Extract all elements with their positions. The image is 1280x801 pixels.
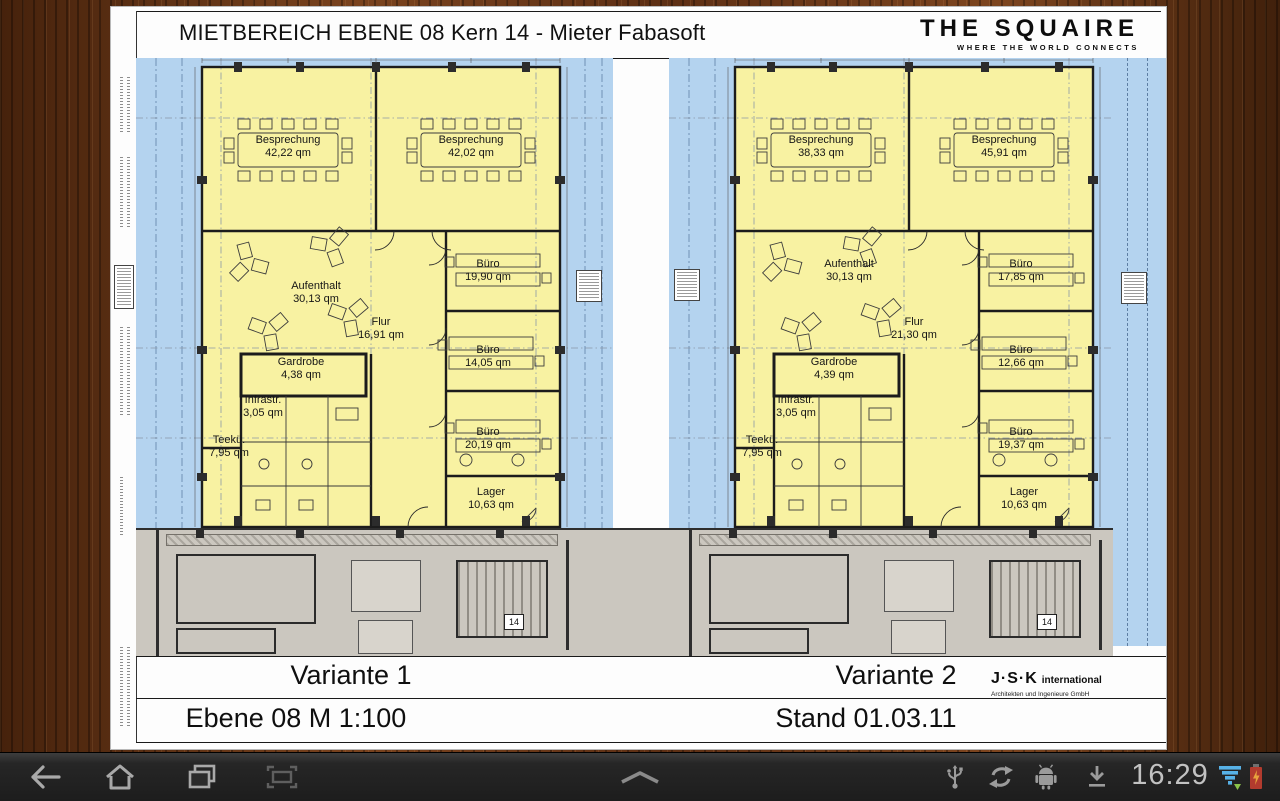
room-label-buero-2: Büro12,66 qm	[961, 344, 1081, 370]
room-label-besprechung-left: Besprechung38,33 qm	[761, 134, 881, 160]
home-button[interactable]	[103, 763, 137, 794]
screenshot-icon	[264, 763, 300, 791]
building-core-band: 14 14	[136, 528, 1113, 656]
sheet-frame-line	[136, 11, 1161, 12]
chevron-up-icon	[618, 769, 662, 785]
screenshot-button[interactable]	[264, 763, 300, 794]
jsk-wordmark: J·S·K	[991, 670, 1038, 687]
room-label-gardrobe: Gardrobe4,39 qm	[774, 356, 894, 382]
room-label-teekue: Teekü.7,95 qm	[712, 434, 812, 460]
room-label-infrastr: Infrastr.3,05 qm	[208, 394, 318, 420]
room-label-flur: Flur21,30 qm	[854, 316, 974, 342]
back-arrow-icon	[28, 763, 64, 791]
room-label-lager: Lager10,63 qm	[964, 486, 1084, 512]
room-label-buero-3: Büro19,37 qm	[961, 426, 1081, 452]
sync-icon	[988, 764, 1014, 795]
axis-strip-right	[1113, 58, 1167, 646]
room-label-buero-1: Büro19,90 qm	[428, 258, 548, 284]
margin-note-box	[114, 265, 134, 309]
stair-number: 14	[504, 614, 524, 630]
axis-note-box	[576, 270, 602, 302]
caption-date: Stand 01.03.11	[681, 703, 1051, 734]
battery-charging-icon	[1248, 763, 1264, 795]
room-label-aufenthalt: Aufenthalt30,13 qm	[256, 280, 376, 306]
logo-wordmark: THE SQUAIRE	[920, 16, 1139, 41]
recent-apps-icon	[186, 763, 218, 791]
room-label-besprechung-right: Besprechung42,02 qm	[411, 134, 531, 160]
jsk-logo: J·S·Kinternational Architekten und Ingen…	[991, 670, 1116, 698]
status-clock[interactable]: 16:29	[1124, 759, 1216, 792]
room-label-gardrobe: Gardrobe4,38 qm	[241, 356, 361, 382]
recent-apps-button[interactable]	[186, 763, 218, 794]
room-label-buero-3: Büro20,19 qm	[428, 426, 548, 452]
document-page: MIETBEREICH EBENE 08 Kern 14 - Mieter Fa…	[110, 6, 1167, 750]
room-label-buero-1: Büro17,85 qm	[961, 258, 1081, 284]
stair-number: 14	[1037, 614, 1057, 630]
page-title: MIETBEREICH EBENE 08 Kern 14 - Mieter Fa…	[179, 20, 705, 46]
room-label-flur: Flur16,91 qm	[321, 316, 441, 342]
room-label-besprechung-left: Besprechung42,22 qm	[228, 134, 348, 160]
the-squaire-logo: THE SQUAIRE WHERE THE WORLD CONNECTS	[920, 16, 1139, 52]
back-button[interactable]	[28, 763, 64, 794]
footer-line-1	[136, 656, 1167, 657]
core-linework-v1: 14	[136, 530, 580, 656]
room-label-besprechung-right: Besprechung45,91 qm	[944, 134, 1064, 160]
jsk-subtitle: Architekten und Ingenieure GmbH	[991, 691, 1116, 698]
room-label-buero-2: Büro14,05 qm	[428, 344, 548, 370]
room-label-teekue: Teekü.7,95 qm	[179, 434, 279, 460]
caption-scale: Ebene 08 M 1:100	[111, 703, 481, 734]
signal-strength-icon	[1218, 764, 1244, 796]
android-nav-bar: 16:29	[0, 752, 1280, 801]
android-debug-icon	[1034, 764, 1058, 795]
room-label-infrastr: Infrastr.3,05 qm	[741, 394, 851, 420]
home-icon	[103, 763, 137, 791]
quick-launch-chevron[interactable]	[618, 769, 662, 788]
caption-variante-1: Variante 1	[151, 660, 551, 691]
footer-line-3	[136, 742, 1167, 743]
room-label-lager: Lager10,63 qm	[431, 486, 551, 512]
logo-tagline: WHERE THE WORLD CONNECTS	[920, 43, 1139, 52]
download-icon	[1086, 764, 1108, 795]
room-label-aufenthalt: Aufenthalt30,13 qm	[789, 258, 909, 284]
axis-note-box	[674, 269, 700, 301]
axis-note-box	[1121, 272, 1147, 304]
footer-line-2	[136, 698, 1167, 699]
core-linework-v2: 14	[669, 530, 1113, 656]
usb-icon	[945, 764, 965, 795]
